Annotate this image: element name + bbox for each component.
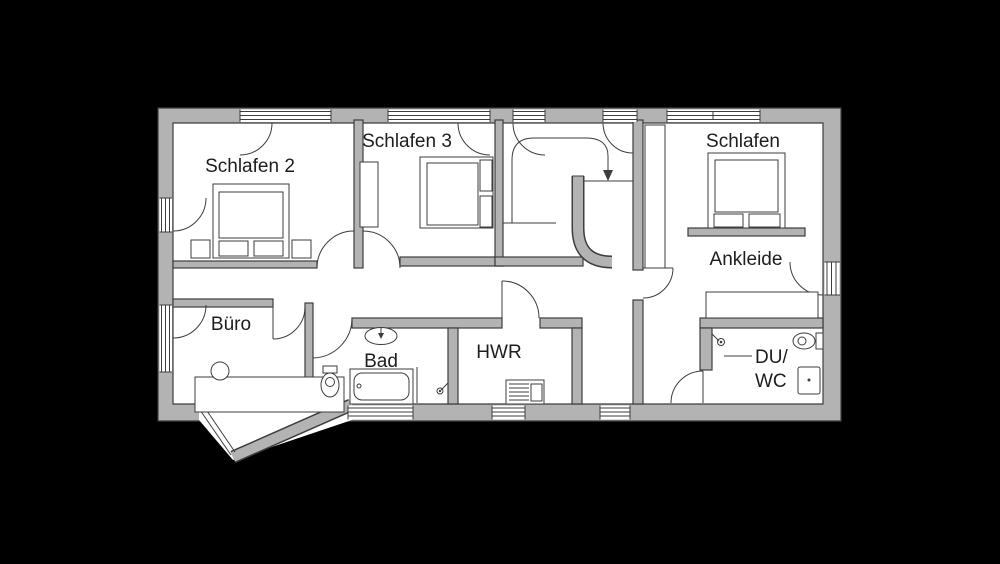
pillow-icon — [480, 160, 492, 191]
window-schlafen — [667, 110, 760, 123]
wardrobe-icon — [360, 162, 378, 227]
room-label-buero: Büro — [211, 314, 251, 335]
room-label-schlafen-2: Schlafen 2 — [205, 156, 295, 177]
pillow-icon — [714, 214, 743, 227]
pillow-icon — [480, 196, 492, 227]
room-label-du: DU/ — [755, 347, 788, 368]
wardrobe-icon — [645, 125, 665, 268]
chair-icon — [211, 362, 229, 380]
window-hwr-bottom — [492, 406, 525, 420]
floor-plan-canvas: Schlafen 2 Schlafen 3 Schlafen Ankleide … — [0, 0, 1000, 564]
nightstand-icon — [292, 240, 311, 258]
room-label-hwr: HWR — [476, 342, 521, 363]
room-label-schlafen-3: Schlafen 3 — [362, 131, 452, 152]
room-label-bad: Bad — [364, 351, 398, 372]
floor-plan-drawing: Schlafen 2 Schlafen 3 Schlafen Ankleide … — [0, 0, 1000, 564]
room-label-wc: WC — [755, 371, 787, 392]
room-label-ankleide: Ankleide — [710, 249, 783, 270]
nightstand-icon — [191, 240, 210, 258]
pillow-icon — [219, 241, 248, 256]
room-label-schlafen: Schlafen — [706, 131, 780, 152]
pillow-icon — [749, 214, 780, 227]
wardrobe-icon — [706, 292, 818, 318]
pillow-icon — [254, 241, 283, 256]
fixtures-hwr — [506, 380, 544, 404]
window-corridor-bottom — [600, 406, 630, 420]
window-bad-bottom — [348, 406, 413, 420]
